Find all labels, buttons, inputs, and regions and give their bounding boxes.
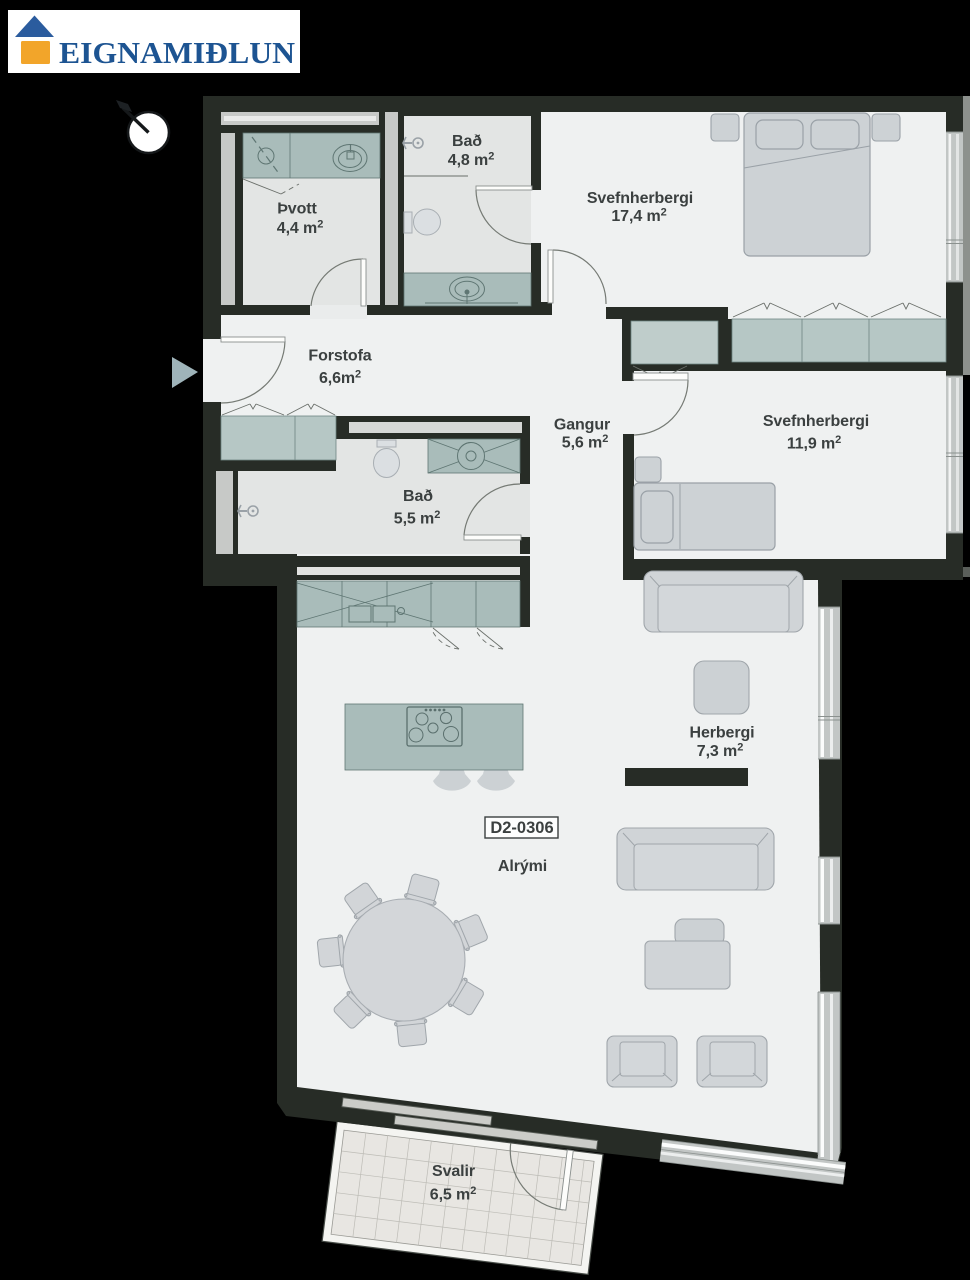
svg-text:5,5 m2: 5,5 m2	[394, 509, 440, 528]
svg-text:Bað: Bað	[403, 488, 433, 505]
svg-text:Herbergi: Herbergi	[690, 725, 755, 742]
svg-text:D2-0306: D2-0306	[490, 819, 553, 837]
svg-text:5,6 m2: 5,6 m2	[562, 433, 608, 452]
svg-text:Alrými: Alrými	[498, 858, 547, 875]
svg-text:Þvott: Þvott	[277, 201, 317, 218]
svg-text:7,3 m2: 7,3 m2	[697, 742, 743, 761]
svg-text:Svefnherbergi: Svefnherbergi	[587, 190, 693, 207]
svg-text:4,8 m2: 4,8 m2	[448, 151, 494, 170]
svg-text:EIGNAMIÐLUN: EIGNAMIÐLUN	[59, 35, 295, 70]
svg-text:11,9 m2: 11,9 m2	[787, 434, 841, 453]
svg-text:17,4 m2: 17,4 m2	[611, 207, 666, 226]
svg-text:Gangur: Gangur	[554, 417, 610, 434]
svg-text:Svalir: Svalir	[432, 1163, 475, 1180]
svg-text:Bað: Bað	[452, 133, 482, 150]
svg-text:6,6m2: 6,6m2	[319, 369, 361, 388]
svg-text:6,5 m2: 6,5 m2	[430, 1185, 476, 1204]
svg-text:Svefnherbergi: Svefnherbergi	[763, 413, 869, 430]
svg-text:4,4 m2: 4,4 m2	[277, 219, 323, 238]
svg-text:Forstofa: Forstofa	[308, 348, 371, 365]
